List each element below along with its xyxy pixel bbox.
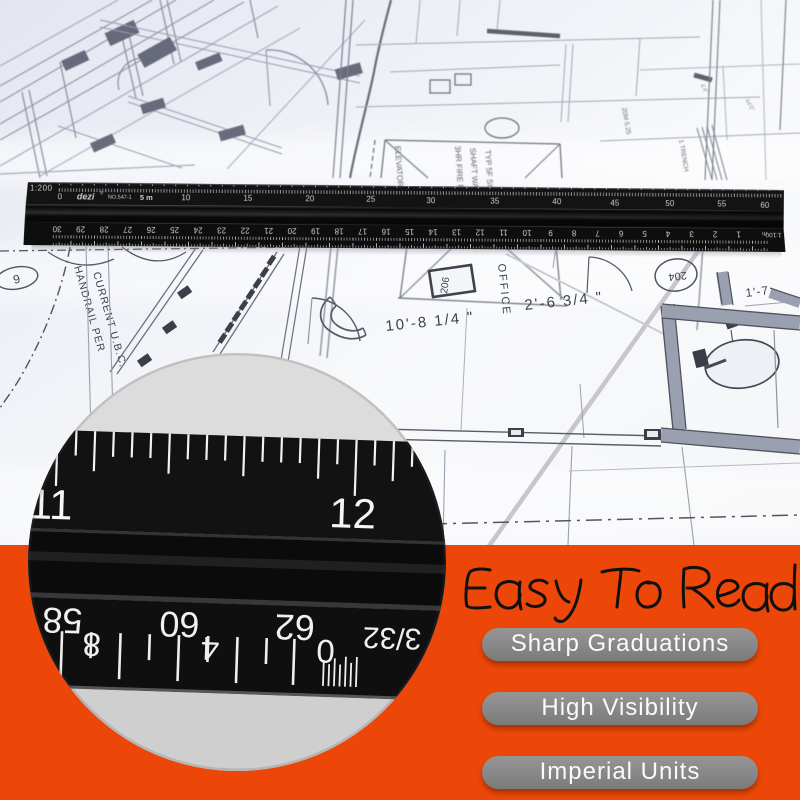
svg-text:15: 15 <box>405 227 415 236</box>
svg-text:6: 6 <box>618 229 623 238</box>
svg-text:3/32: 3/32 <box>362 620 421 655</box>
svg-text:12: 12 <box>475 228 485 237</box>
svg-text:26: 26 <box>146 225 156 234</box>
svg-text:9: 9 <box>548 228 553 237</box>
svg-text:1:100: 1:100 <box>765 231 782 238</box>
svg-text:3: 3 <box>689 229 694 238</box>
svg-text:45: 45 <box>610 199 620 208</box>
svg-text:22: 22 <box>240 226 250 235</box>
svg-text:1: 1 <box>736 230 741 239</box>
svg-text:NO.547-1: NO.547-1 <box>108 195 132 201</box>
svg-text:50: 50 <box>665 199 675 208</box>
svg-text:4: 4 <box>665 229 670 238</box>
svg-text:55: 55 <box>717 199 727 208</box>
svg-text:27: 27 <box>123 225 133 234</box>
svg-text:10: 10 <box>181 193 191 202</box>
svg-text:24: 24 <box>193 225 203 234</box>
svg-text:20: 20 <box>305 194 315 203</box>
svg-text:dezi: dezi <box>77 191 95 201</box>
svg-text:28: 28 <box>99 225 109 234</box>
svg-text:11: 11 <box>499 228 508 237</box>
svg-text:14: 14 <box>428 227 438 236</box>
svg-text:1:200: 1:200 <box>30 184 53 193</box>
svg-text:1'-7: 1'-7 <box>745 283 770 300</box>
svg-text:10: 10 <box>522 228 532 237</box>
svg-text:25: 25 <box>366 195 376 204</box>
svg-text:60: 60 <box>760 201 770 210</box>
svg-text:35: 35 <box>490 197 500 206</box>
svg-text:204: 204 <box>668 269 688 283</box>
svg-text:2: 2 <box>712 229 717 238</box>
svg-text:25: 25 <box>170 225 180 234</box>
svg-text:5: 5 <box>642 229 647 238</box>
svg-text:19: 19 <box>311 226 321 235</box>
svg-text:0: 0 <box>58 192 63 201</box>
svg-text:30: 30 <box>52 224 62 233</box>
svg-text:12: 12 <box>329 489 377 538</box>
svg-text:20: 20 <box>287 226 297 235</box>
svg-text:18: 18 <box>334 226 344 235</box>
svg-text:17: 17 <box>358 227 368 236</box>
svg-text:30: 30 <box>426 196 436 205</box>
svg-text:4: 4 <box>200 630 220 668</box>
svg-text:15: 15 <box>243 194 253 203</box>
svg-text:8: 8 <box>571 228 576 237</box>
svg-text:21: 21 <box>264 226 274 235</box>
svg-text:5 m: 5 m <box>140 193 153 202</box>
svg-text:29: 29 <box>76 224 86 233</box>
svg-text:0: 0 <box>316 633 336 671</box>
svg-text:23: 23 <box>217 226 227 235</box>
svg-text:16: 16 <box>381 227 391 236</box>
svg-text:7: 7 <box>595 228 600 237</box>
svg-text:11: 11 <box>28 480 73 528</box>
svg-text:40: 40 <box>552 197 562 206</box>
svg-text:13: 13 <box>452 227 462 236</box>
